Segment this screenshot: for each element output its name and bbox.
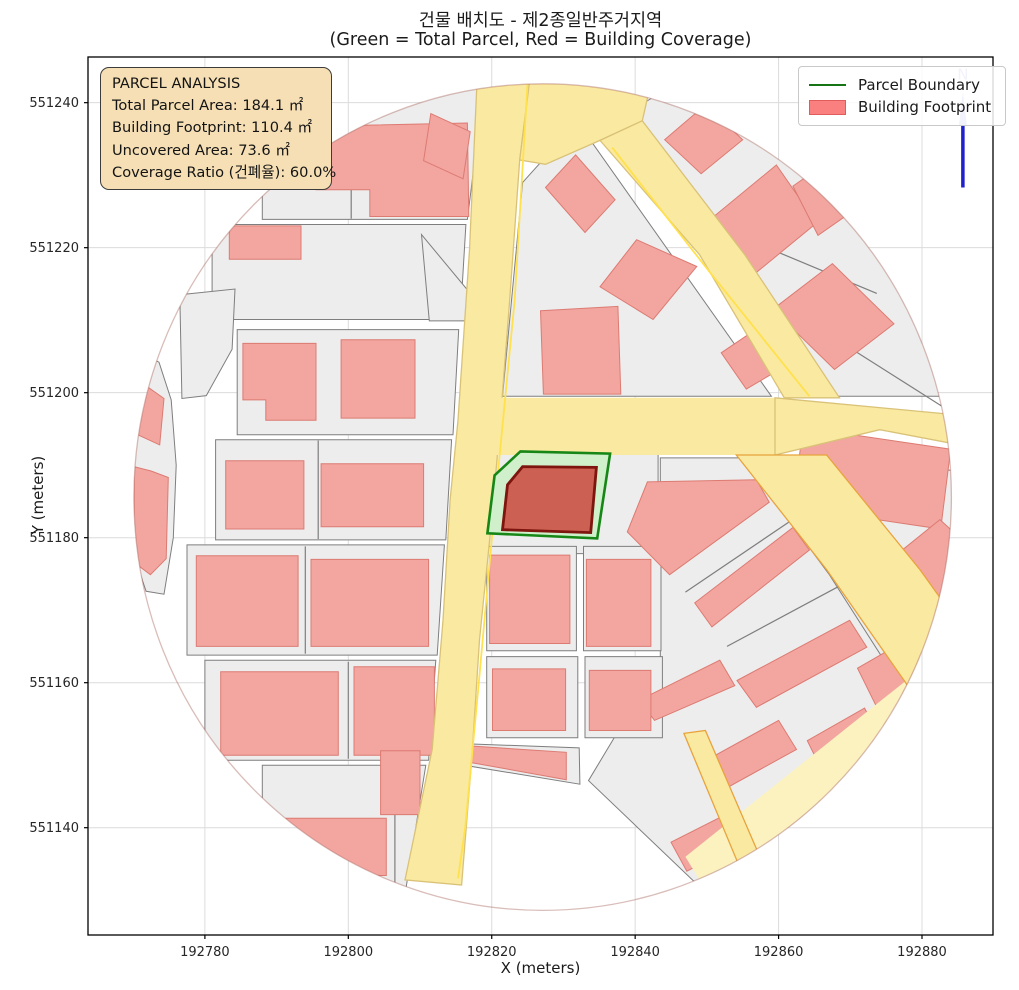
x-tick-label: 192780 <box>180 945 230 960</box>
building-polygon <box>341 340 415 418</box>
chart-title: 건물 배치도 - 제2종일반주거지역 <box>88 7 993 32</box>
building-polygon <box>321 464 424 527</box>
building-polygon <box>196 556 298 647</box>
building-polygon <box>490 555 570 643</box>
x-tick-label: 192840 <box>610 945 660 960</box>
building-polygon <box>229 226 301 259</box>
building-polygon <box>221 672 339 755</box>
legend-item-building-footprint: Building Footprint <box>809 96 995 118</box>
road-polygon <box>495 398 775 455</box>
legend-item-parcel-boundary: Parcel Boundary <box>809 74 995 96</box>
building-polygon <box>493 669 566 731</box>
building-polygon <box>589 670 651 730</box>
x-tick-label: 192860 <box>754 945 804 960</box>
building-polygon <box>381 751 420 815</box>
building-polygon <box>226 461 304 529</box>
legend-label: Parcel Boundary <box>858 76 980 94</box>
building-footprint-patch-swatch <box>809 100 846 115</box>
building-polygon <box>134 467 168 575</box>
y-axis-label: Y (meters) <box>29 435 47 555</box>
parcel-analysis-title: PARCEL ANALYSIS <box>112 73 320 95</box>
parcel-analysis-box: PARCEL ANALYSIS Total Parcel Area: 184.1… <box>100 67 332 190</box>
y-tick-label: 551140 <box>29 821 79 836</box>
x-tick-label: 192880 <box>897 945 947 960</box>
coverage-ratio: Coverage Ratio (건폐율): 60.0% <box>112 162 320 184</box>
subject-building-polygon <box>503 467 597 533</box>
y-tick-label: 551200 <box>29 386 79 401</box>
x-axis-label: X (meters) <box>88 959 993 977</box>
building-footprint-area: Building Footprint: 110.4 ㎡ <box>112 117 320 139</box>
x-tick-label: 192800 <box>323 945 373 960</box>
uncovered-area: Uncovered Area: 73.6 ㎡ <box>112 140 320 162</box>
building-polygon <box>541 306 621 394</box>
y-tick-label: 551220 <box>29 241 79 256</box>
legend-label: Building Footprint <box>858 98 991 116</box>
building-polygon <box>311 559 429 646</box>
total-parcel-area: Total Parcel Area: 184.1 ㎡ <box>112 95 320 117</box>
x-tick-label: 192820 <box>467 945 517 960</box>
building-polygon <box>354 667 434 756</box>
y-tick-label: 551240 <box>29 96 79 111</box>
parcel-boundary-line-swatch <box>809 84 846 86</box>
y-tick-label: 551160 <box>29 676 79 691</box>
legend: Parcel Boundary Building Footprint <box>798 66 1006 126</box>
figure: 건물 배치도 - 제2종일반주거지역 (Green = Total Parcel… <box>0 0 1019 990</box>
building-polygon <box>586 559 651 646</box>
chart-subtitle: (Green = Total Parcel, Red = Building Co… <box>88 30 993 50</box>
